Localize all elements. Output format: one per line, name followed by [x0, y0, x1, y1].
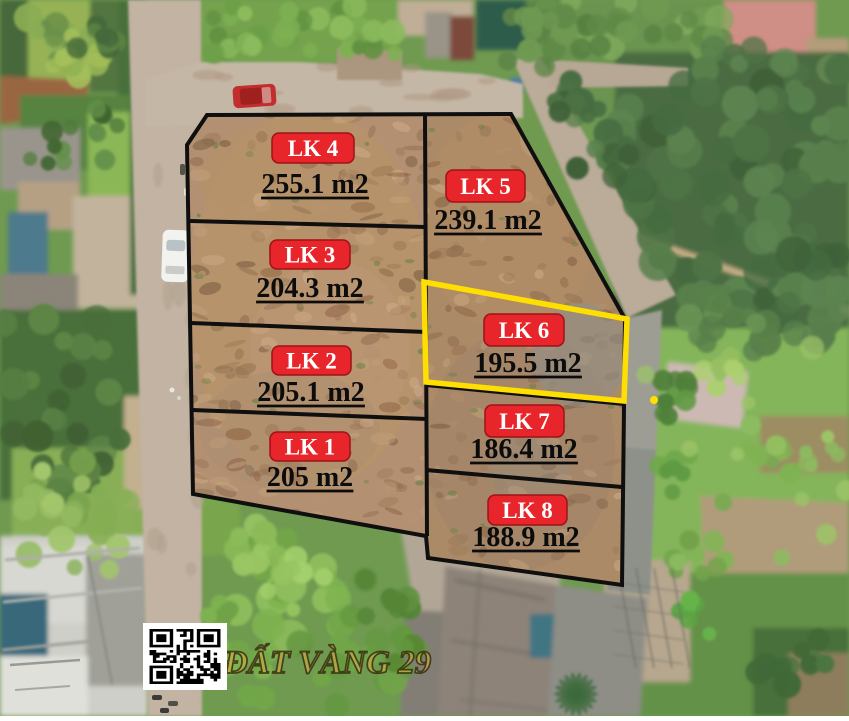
svg-text:205.1 m2: 205.1 m2	[257, 377, 364, 408]
svg-text:LK 3: LK 3	[285, 242, 335, 267]
svg-text:LK 8: LK 8	[502, 498, 552, 523]
svg-text:LK 6: LK 6	[499, 318, 549, 343]
svg-text:LK 1: LK 1	[285, 434, 335, 459]
svg-text:LK 4: LK 4	[288, 136, 339, 161]
svg-text:239.1 m2: 239.1 m2	[434, 205, 541, 236]
svg-text:186.4 m2: 186.4 m2	[470, 434, 577, 465]
svg-text:LK 5: LK 5	[460, 174, 510, 199]
svg-text:205 m2: 205 m2	[267, 462, 353, 493]
svg-text:204.3 m2: 204.3 m2	[256, 273, 363, 304]
svg-text:188.9 m2: 188.9 m2	[472, 522, 579, 553]
svg-text:LK 2: LK 2	[286, 348, 336, 373]
svg-text:LK 7: LK 7	[499, 409, 549, 434]
svg-text:195.5 m2: 195.5 m2	[474, 348, 581, 379]
svg-text:255.1 m2: 255.1 m2	[261, 169, 368, 200]
svg-text:ĐẤT VÀNG 29: ĐẤT VÀNG 29	[223, 643, 431, 681]
